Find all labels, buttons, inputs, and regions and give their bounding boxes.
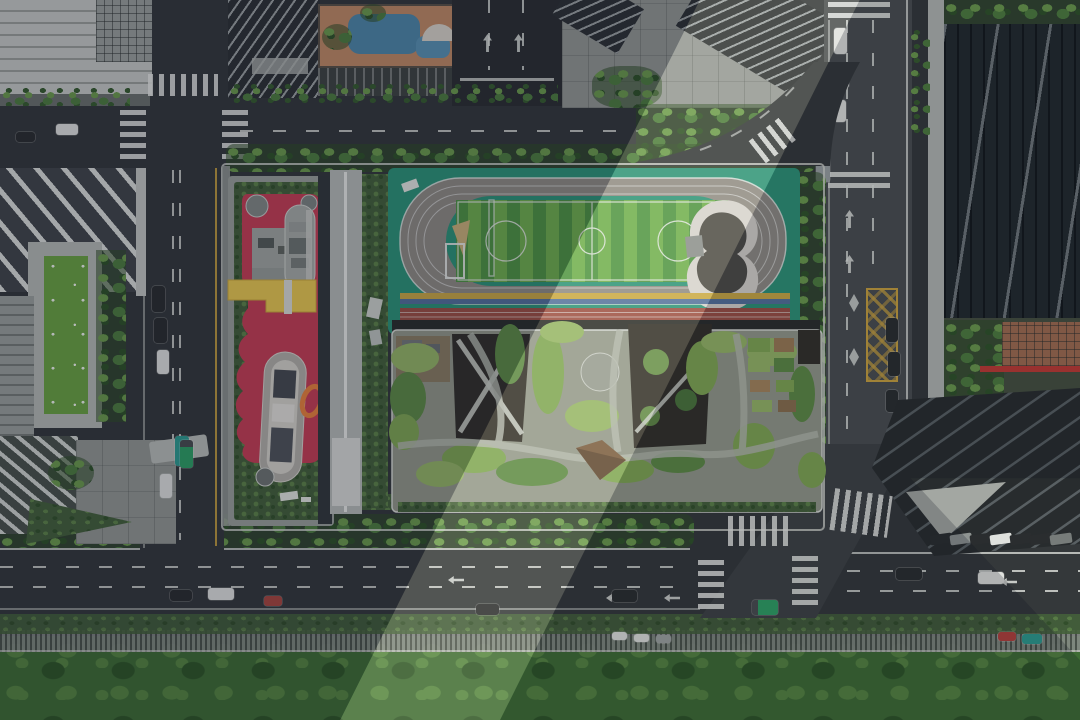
parked-car <box>634 634 649 642</box>
car <box>160 474 172 498</box>
roof-pad-circle <box>256 468 274 486</box>
green-roof-building <box>389 320 826 512</box>
ridged-roof-building <box>872 388 1080 556</box>
capsule-rooftop-b <box>259 351 308 483</box>
truck-red-small <box>998 632 1016 641</box>
amphitheater-deck <box>685 235 704 258</box>
crosswalk <box>728 516 790 546</box>
sports-field <box>388 168 800 334</box>
courtyard-pit-east <box>798 330 820 364</box>
white-walkway <box>284 280 292 314</box>
car <box>896 568 922 580</box>
truck-red <box>264 596 282 606</box>
car <box>208 588 234 600</box>
greenhouse-strip <box>318 170 388 524</box>
crosswalk <box>829 488 892 538</box>
white-roof-block <box>332 438 360 506</box>
car <box>170 590 192 601</box>
car <box>978 572 1004 584</box>
car <box>476 604 499 615</box>
truck-teal-small <box>1022 634 1042 644</box>
school-campus <box>222 164 826 530</box>
car <box>152 286 165 312</box>
crosswalk <box>792 556 818 610</box>
car <box>157 350 169 374</box>
south-hedge <box>398 502 816 512</box>
car <box>612 590 637 602</box>
parked-car <box>656 635 671 643</box>
crosswalk <box>698 560 724 612</box>
truck-green <box>752 600 778 615</box>
parked-car <box>612 632 627 640</box>
ladder-strip <box>306 210 312 286</box>
roof-pad-circle <box>246 195 268 217</box>
parked-car-row <box>929 533 1072 546</box>
car <box>154 318 167 343</box>
truck-green-cargo <box>180 440 193 468</box>
aerial-photo-canvas <box>0 0 1080 720</box>
road-curve-topright <box>636 62 860 166</box>
